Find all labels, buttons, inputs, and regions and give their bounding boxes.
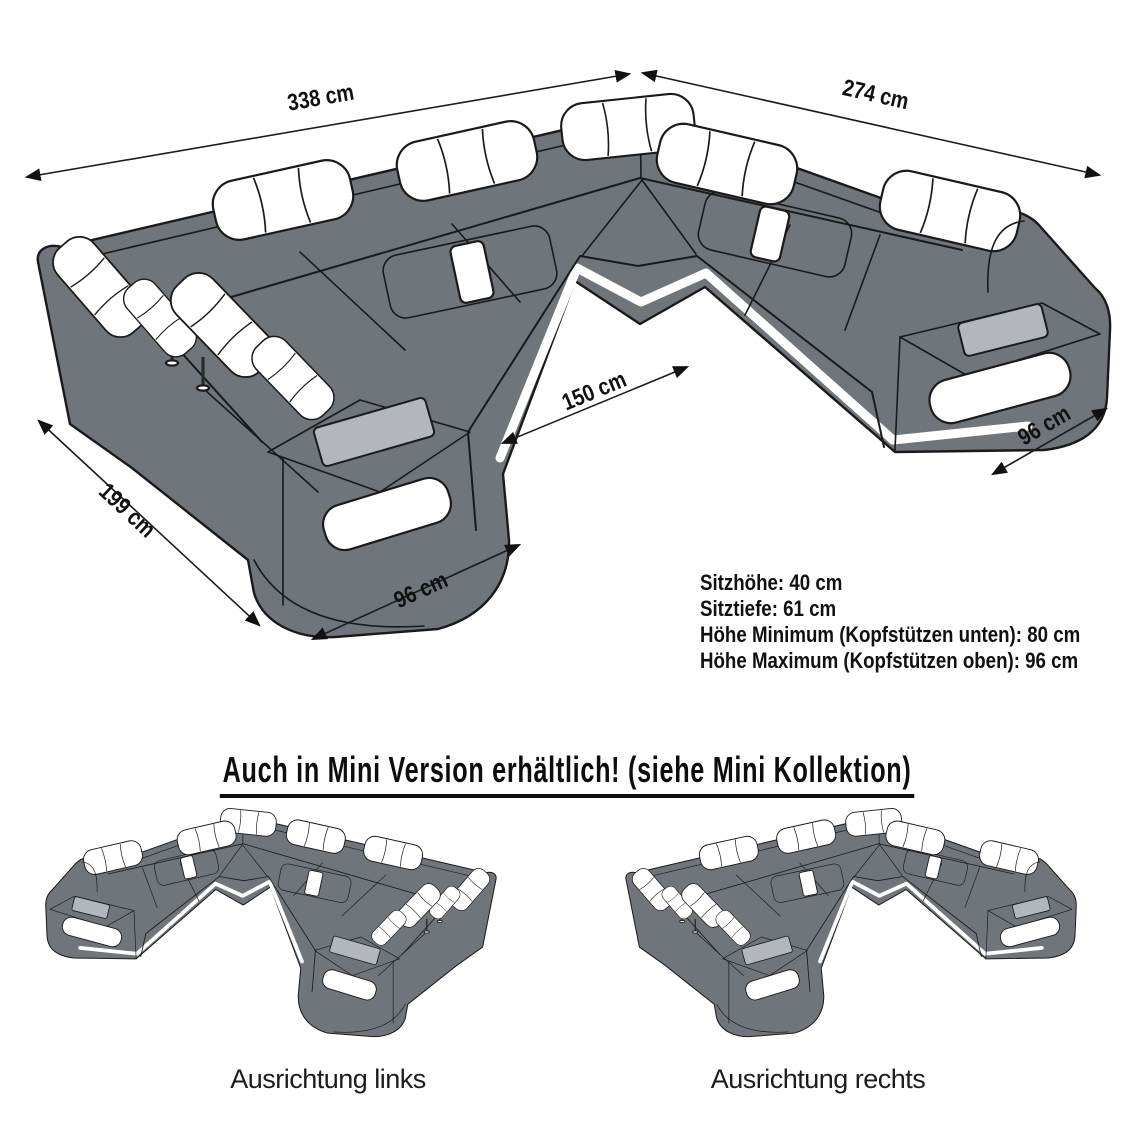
diagram-canvas: 338 cm 274 cm 150 cm 96 cm 199 cm 96 cm — [0, 0, 1134, 1134]
spec-line-height-max: Höhe Maximum (Kopfstützen oben): 96 cm — [700, 648, 1080, 674]
spec-block: Sitzhöhe: 40 cm Sitztiefe: 61 cm Höhe Mi… — [700, 570, 1080, 674]
caption-orientation-right: Ausrichtung rechts — [668, 1064, 968, 1095]
dimension-label-left-depth: 199 cm — [94, 477, 161, 542]
dimension-label-back-width: 338 cm — [285, 78, 356, 116]
spec-line-height-min: Höhe Minimum (Kopfstützen unten): 80 cm — [700, 622, 1080, 648]
spec-line-seat-height: Sitzhöhe: 40 cm — [700, 570, 1080, 596]
caption-orientation-left: Ausrichtung links — [178, 1064, 478, 1095]
mini-sofa-right-orientation — [626, 808, 1076, 1037]
mini-section-heading: Auch in Mini Version erhältlich! (siehe … — [220, 749, 914, 798]
mini-section: Auch in Mini Version erhältlich! (siehe … — [0, 749, 1134, 798]
dimension-label-inner-opening: 150 cm — [558, 365, 630, 416]
mini-sofa-left-orientation — [46, 808, 496, 1037]
spec-line-seat-depth: Sitztiefe: 61 cm — [700, 596, 1080, 622]
main-sofa-illustration — [38, 92, 1110, 637]
dimension-label-right-depth: 274 cm — [840, 74, 911, 115]
product-dimension-diagram: 338 cm 274 cm 150 cm 96 cm 199 cm 96 cm … — [0, 0, 1134, 1134]
